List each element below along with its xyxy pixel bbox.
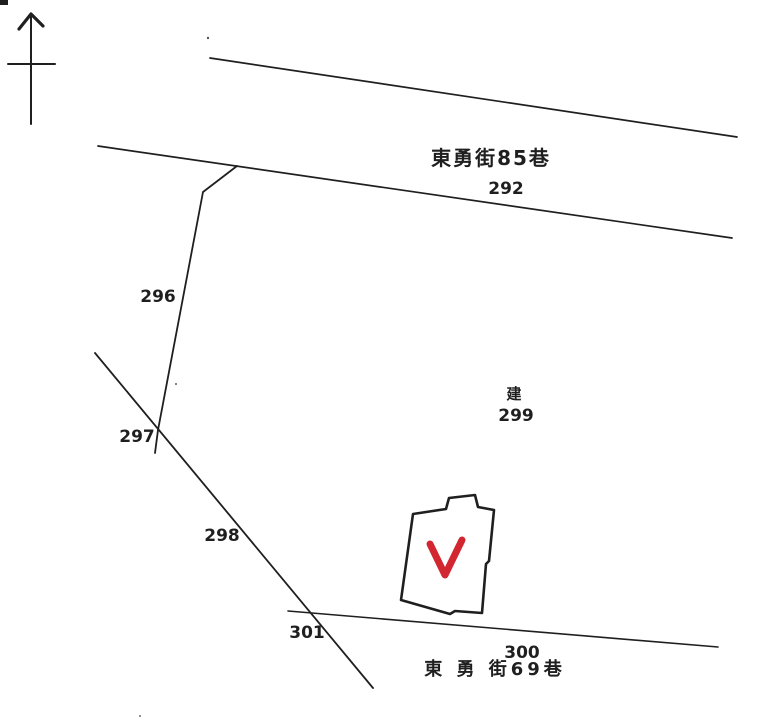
road-edge-top-south (98, 146, 732, 238)
parcel-boundary-298 (95, 353, 373, 688)
parcel-label-292: 292 (488, 181, 524, 198)
map-drawing (0, 0, 771, 720)
road-edge-top-north (210, 58, 737, 137)
parcel-label-296: 296 (140, 289, 176, 306)
scan-dot (139, 715, 141, 717)
building-outline (401, 495, 494, 614)
parcel-label-297: 297 (119, 429, 155, 446)
scan-dot (207, 37, 209, 39)
ink-layer (0, 0, 737, 717)
scan-dot (175, 383, 177, 385)
cadastral-map: 東勇街85巷 292 296 297 298 301 建 299 300 東 勇… (0, 0, 771, 720)
building-annotation-label: 建 (506, 387, 521, 402)
parcel-label-298: 298 (204, 528, 240, 545)
scan-corner-mark (0, 0, 8, 5)
north-arrow-icon (8, 14, 55, 124)
street-label-top: 東勇街85巷 (431, 148, 551, 168)
parcel-label-299: 299 (498, 408, 534, 425)
parcel-boundary-296 (155, 166, 237, 453)
parcel-label-301: 301 (289, 625, 325, 642)
street-label-bottom: 東 勇 街69巷 (424, 661, 566, 679)
road-edge-bottom (288, 611, 718, 647)
